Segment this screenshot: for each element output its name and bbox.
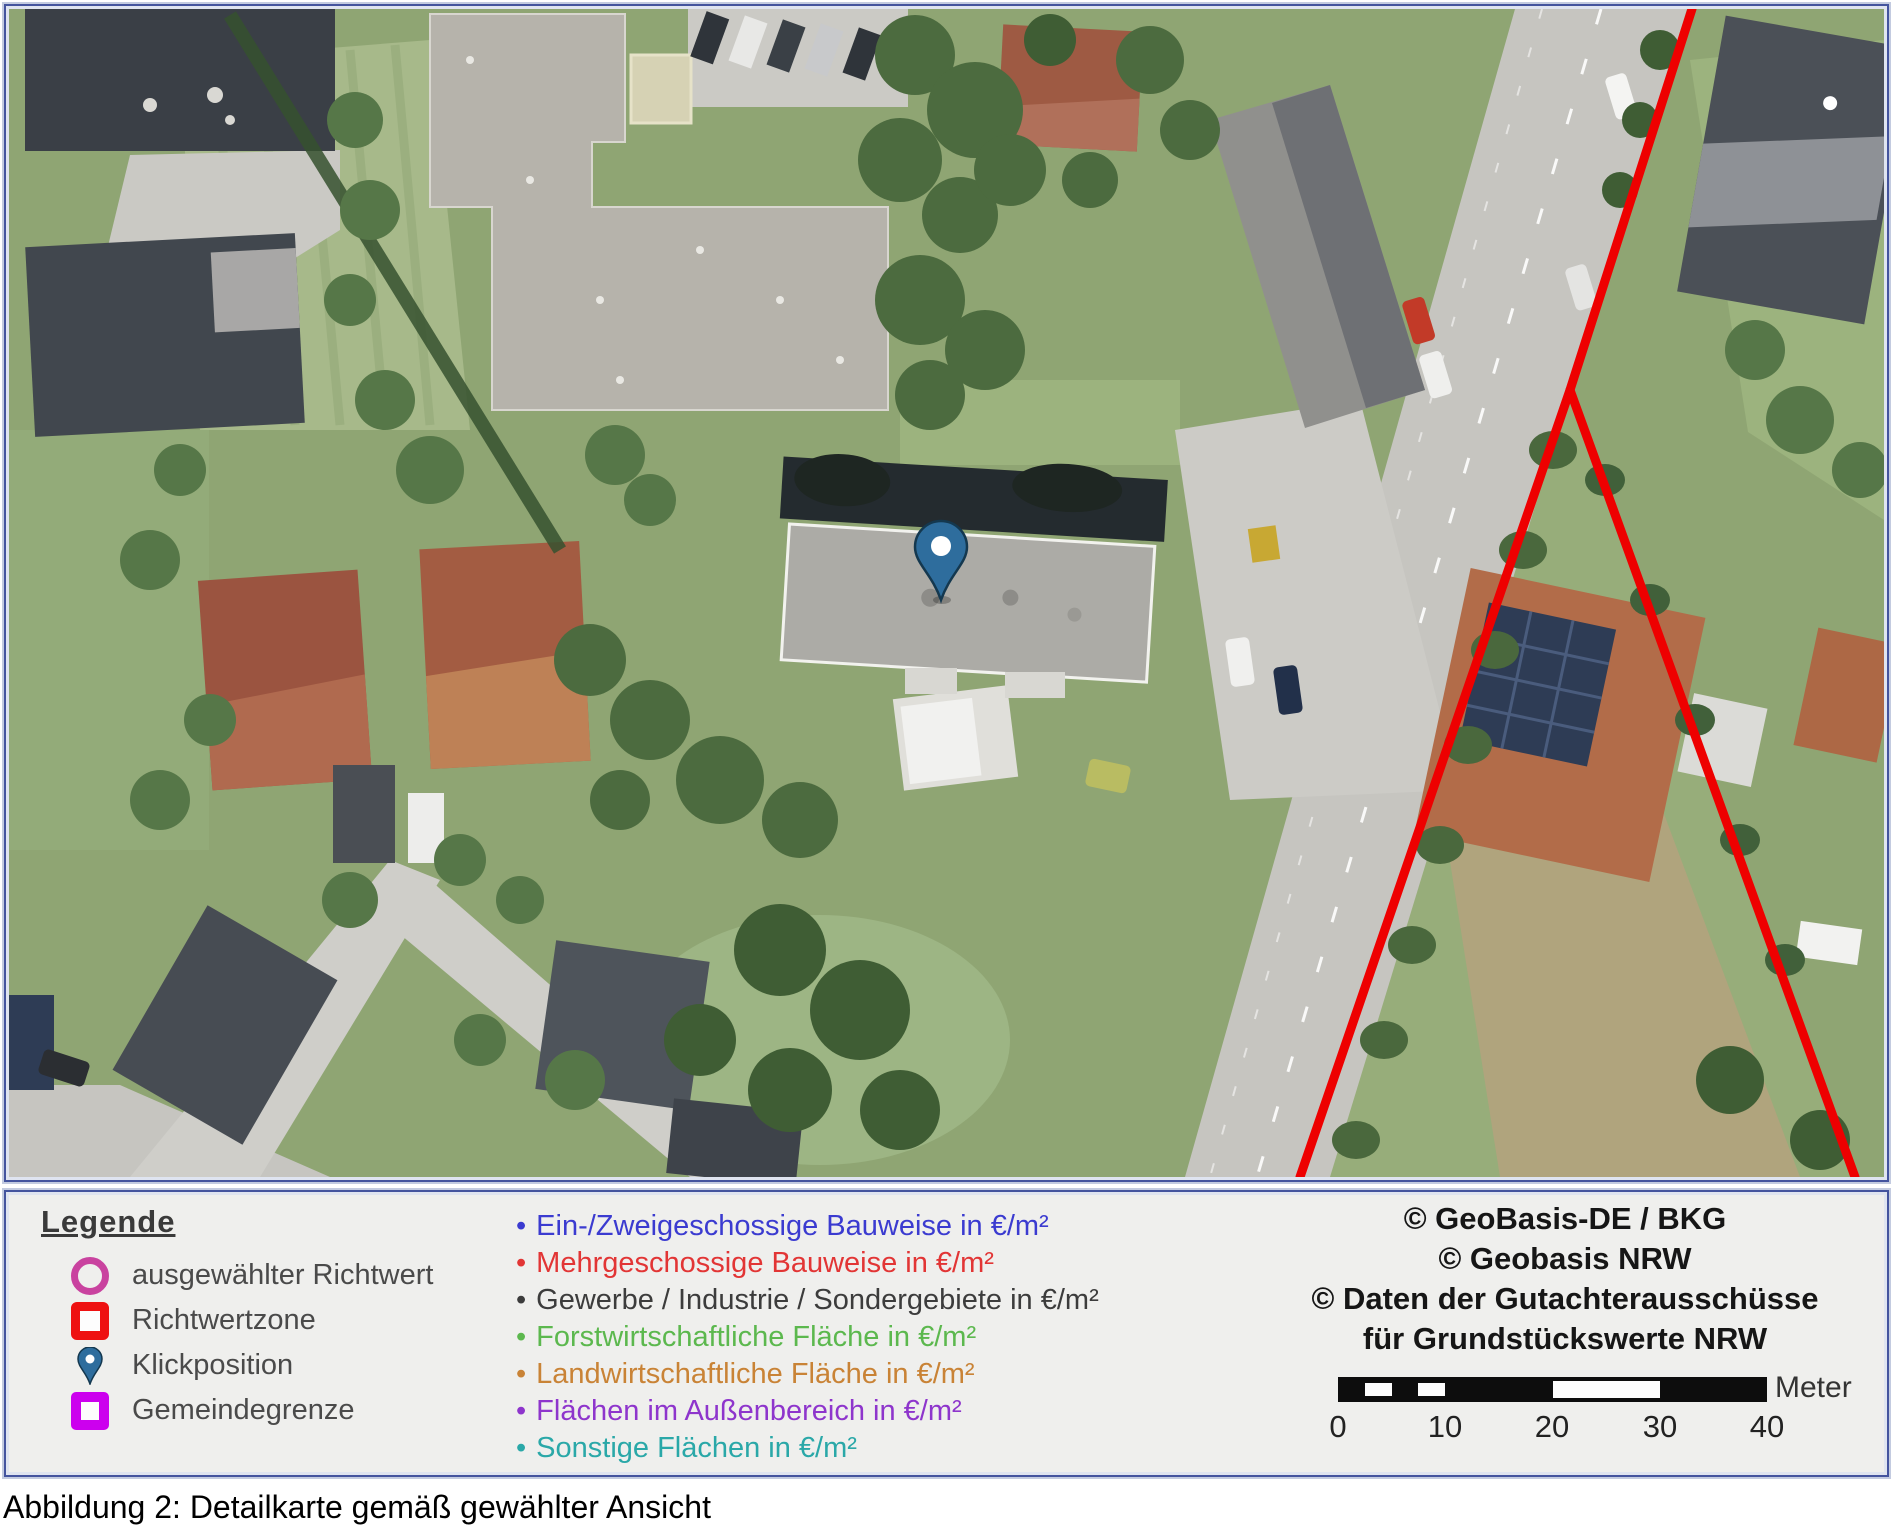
legend-category-label: Flächen im Außenbereich in €/m² <box>536 1395 962 1428</box>
map-attribution: © GeoBasis-DE / BKG © Geobasis NRW © Dat… <box>1179 1199 1884 1359</box>
bullet-icon: • <box>516 1247 526 1280</box>
legend-category: • Flächen im Außenbereich in €/m² <box>516 1393 1099 1430</box>
richtwertzone-square-icon <box>71 1302 109 1340</box>
legend-symbol-list: ausgewählter Richtwert Richtwertzone Kli… <box>62 1253 433 1433</box>
attribution-line: © Daten der Gutachterausschüsse <box>1179 1279 1884 1319</box>
building <box>25 9 335 151</box>
scale-bar: Meter 0 10 20 30 40 <box>1338 1377 1878 1467</box>
legend-category-label: Gewerbe / Industrie / Sondergebiete in €… <box>536 1284 1099 1317</box>
legend-item-klickposition: Klickposition <box>62 1343 433 1388</box>
legend-category: • Sonstige Flächen in €/m² <box>516 1430 1099 1467</box>
selected-richtwert-circle-icon <box>71 1257 109 1295</box>
legend-category: • Ein-/Zweigeschossige Bauweise in €/m² <box>516 1208 1099 1245</box>
bullet-icon: • <box>516 1395 526 1428</box>
legend-category-label: Mehrgeschossige Bauweise in €/m² <box>536 1247 994 1280</box>
legend-category-label: Landwirtschaftliche Fläche in €/m² <box>536 1358 974 1391</box>
legend-item-label: Richtwertzone <box>118 1304 316 1337</box>
scale-tick: 30 <box>1643 1409 1677 1445</box>
building <box>333 765 395 863</box>
scale-tick: 20 <box>1535 1409 1569 1445</box>
legend-category-label: Sonstige Flächen in €/m² <box>536 1432 857 1465</box>
gemeindegrenze-square-icon <box>71 1392 109 1430</box>
attribution-line: © GeoBasis-DE / BKG <box>1179 1199 1884 1239</box>
scale-tick: 40 <box>1750 1409 1784 1445</box>
legend-category-label: Forstwirtschaftliche Fläche in €/m² <box>536 1321 976 1354</box>
scale-bar-graphic <box>1338 1377 1767 1402</box>
bullet-icon: • <box>516 1321 526 1354</box>
attribution-line: für Grundstückswerte NRW <box>1179 1319 1884 1359</box>
legend-item-label: ausgewählter Richtwert <box>118 1259 433 1292</box>
aerial-imagery <box>9 9 1884 1177</box>
legend-title: Legende <box>41 1204 175 1240</box>
page: Legende ausgewählter Richtwert Richtwert… <box>0 0 1893 1529</box>
attribution-line: © Geobasis NRW <box>1179 1239 1884 1279</box>
bullet-icon: • <box>516 1210 526 1243</box>
legend-panel: Legende ausgewählter Richtwert Richtwert… <box>4 1190 1889 1477</box>
legend-category: • Landwirtschaftliche Fläche in €/m² <box>516 1356 1099 1393</box>
subject-building <box>771 447 1168 683</box>
legend-category: • Mehrgeschossige Bauweise in €/m² <box>516 1245 1099 1282</box>
scale-tick: 0 <box>1329 1409 1346 1445</box>
legend-item-gemeindegrenze: Gemeindegrenze <box>62 1388 433 1433</box>
legend-category-list: • Ein-/Zweigeschossige Bauweise in €/m² … <box>516 1208 1099 1467</box>
scale-tick: 10 <box>1428 1409 1462 1445</box>
legend-category: • Gewerbe / Industrie / Sondergebiete in… <box>516 1282 1099 1319</box>
scale-bar-unit: Meter <box>1775 1371 1852 1405</box>
bullet-icon: • <box>516 1284 526 1317</box>
bullet-icon: • <box>516 1432 526 1465</box>
figure-caption: Abbildung 2: Detailkarte gemäß gewählter… <box>3 1489 711 1526</box>
map-viewport[interactable] <box>9 9 1884 1177</box>
legend-category-label: Ein-/Zweigeschossige Bauweise in €/m² <box>536 1210 1049 1243</box>
legend-item-label: Klickposition <box>118 1349 293 1382</box>
legend-item-ausgewaehlter-richtwert: ausgewählter Richtwert <box>62 1253 433 1298</box>
bullet-icon: • <box>516 1358 526 1391</box>
legend-item-richtwertzone: Richtwertzone <box>62 1298 433 1343</box>
map-panel <box>4 4 1889 1182</box>
map-pin-icon <box>62 1347 118 1385</box>
legend-category: • Forstwirtschaftliche Fläche in €/m² <box>516 1319 1099 1356</box>
legend-item-label: Gemeindegrenze <box>118 1394 354 1427</box>
